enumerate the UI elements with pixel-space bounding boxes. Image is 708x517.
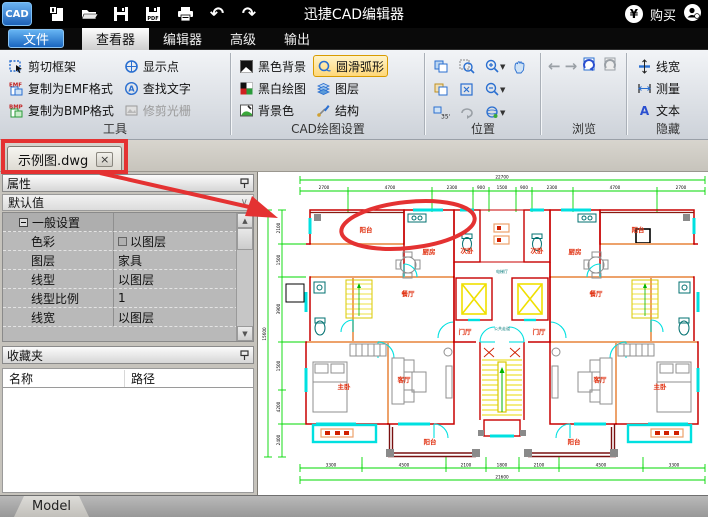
- svg-text:1500: 1500: [276, 254, 281, 265]
- favorites-columns: 名称 路径: [2, 368, 254, 388]
- menu-bar: 文件 查看器 编辑器 高级 输出: [0, 28, 708, 50]
- svg-text:A: A: [640, 104, 650, 118]
- group-cad-settings: 黑色背景 黑白绘图 背景色 圆滑弧形: [232, 50, 424, 139]
- currency-icon: ¥: [625, 5, 643, 23]
- smooth-arc-button[interactable]: 圆滑弧形: [313, 55, 388, 77]
- trim-raster-button: 修剪光栅: [121, 99, 194, 121]
- room-label: 门厅: [459, 327, 473, 336]
- tab-output[interactable]: 输出: [270, 28, 324, 50]
- property-group-row[interactable]: 一般设置: [3, 213, 253, 232]
- window-title: 迅捷CAD编辑器: [304, 4, 404, 24]
- redo-icon[interactable]: ↷: [238, 4, 260, 24]
- bw-drawing-button[interactable]: 黑白绘图: [236, 77, 309, 99]
- black-background-icon: [239, 59, 254, 74]
- zoom-out-button[interactable]: ▼: [482, 78, 508, 101]
- properties-header: 属性: [2, 174, 254, 192]
- copy-view-button[interactable]: [430, 55, 456, 78]
- black-background-button[interactable]: 黑色背景: [236, 55, 309, 77]
- svg-text:4700: 4700: [385, 185, 396, 190]
- document-tab-label: 示例图.dwg: [18, 150, 88, 169]
- svg-text:2100: 2100: [276, 222, 281, 233]
- group-browse: ← → 浏览: [542, 50, 626, 139]
- svg-text:4500: 4500: [596, 463, 607, 468]
- layers-icon: [316, 81, 331, 96]
- model-tab[interactable]: Model: [14, 496, 89, 517]
- app-logo-icon: CAD: [2, 2, 32, 26]
- column-path[interactable]: 路径: [125, 370, 155, 387]
- ribbon: 剪切框架 EMF 复制为EMF格式 BMP 复制为BMP格式 显示点: [0, 50, 708, 140]
- scrollbar[interactable]: ▲ ▼: [236, 213, 253, 341]
- open-file-icon[interactable]: [78, 4, 100, 24]
- svg-text:2400: 2400: [276, 434, 281, 445]
- find-text-button[interactable]: A 查找文字: [121, 77, 194, 99]
- floor-plan: 22700 2700 4700 2300 900 1500 900 2300 4…: [258, 172, 708, 495]
- collapse-icon[interactable]: [19, 218, 28, 227]
- copy-bmp-button[interactable]: BMP 复制为BMP格式: [6, 99, 117, 121]
- reload-all-button: [602, 56, 619, 77]
- svg-text:2100: 2100: [534, 463, 545, 468]
- column-name[interactable]: 名称: [3, 370, 125, 387]
- core-text: 电梯厅: [496, 268, 508, 274]
- account-icon[interactable]: [683, 3, 702, 26]
- measure-icon: [637, 81, 652, 96]
- save-icon[interactable]: [110, 4, 132, 24]
- quick-toolbar: PDF ↶ ↷: [46, 4, 260, 24]
- svg-text:2300: 2300: [547, 185, 558, 190]
- room-label: 阳台: [568, 437, 582, 446]
- new-file-icon[interactable]: [46, 4, 68, 24]
- core: [454, 210, 550, 436]
- back-view-button: ←: [548, 57, 561, 75]
- show-points-button[interactable]: 显示点: [121, 55, 194, 77]
- document-tab-bar: 示例图.dwg ×: [0, 140, 708, 172]
- group-position: ▼ ▼ 35° ▼ 位置: [426, 50, 540, 139]
- zoom-extents-button[interactable]: [456, 78, 482, 101]
- preset-selector[interactable]: 默认值 ∨: [2, 194, 254, 211]
- pan-button[interactable]: [508, 55, 534, 78]
- property-row-linetype[interactable]: 线型 以图层: [3, 270, 253, 289]
- titlebar-right: ¥ 购买: [625, 0, 702, 28]
- color-swatch: [118, 237, 127, 246]
- show-points-icon: [124, 59, 139, 74]
- pin-icon[interactable]: [240, 178, 249, 189]
- copy-emf-button[interactable]: EMF 复制为EMF格式: [6, 77, 117, 99]
- tab-viewer[interactable]: 查看器: [82, 28, 149, 50]
- svg-text:900: 900: [520, 185, 528, 190]
- close-tab-icon[interactable]: ×: [96, 152, 113, 167]
- svg-text:900: 900: [477, 185, 485, 190]
- room-label: 主卧: [654, 382, 668, 391]
- pdf-badge: PDF: [147, 16, 158, 22]
- svg-text:3300: 3300: [669, 463, 680, 468]
- core-text: 公共走道: [494, 325, 510, 331]
- room-label: 主卧: [338, 382, 352, 391]
- drawing-canvas[interactable]: 22700 2700 4700 2300 900 1500 900 2300 4…: [258, 172, 708, 495]
- hide-measure-button[interactable]: 测量: [634, 77, 708, 99]
- svg-text:4500: 4500: [399, 463, 410, 468]
- background-color-button[interactable]: 背景色: [236, 99, 309, 121]
- layers-button[interactable]: 图层: [313, 77, 388, 99]
- print-icon[interactable]: [174, 4, 196, 24]
- property-grid: 一般设置 色彩 以图层 图层 家具 线型 以图层 线型比例 1: [2, 212, 254, 342]
- group-tools: 剪切框架 EMF 复制为EMF格式 BMP 复制为BMP格式 显示点: [0, 50, 230, 139]
- scroll-thumb[interactable]: [237, 228, 253, 250]
- svg-text:1500: 1500: [497, 185, 508, 190]
- scroll-down-icon[interactable]: ▼: [237, 326, 253, 341]
- clip-frame-button[interactable]: 剪切框架: [6, 55, 117, 77]
- property-row-layer[interactable]: 图层 家具: [3, 251, 253, 270]
- tab-editor[interactable]: 编辑器: [149, 28, 216, 50]
- svg-text:3300: 3300: [326, 463, 337, 468]
- zoom-in-button[interactable]: ▼: [482, 55, 508, 78]
- paste-view-button[interactable]: [430, 78, 456, 101]
- room-label: 餐厅: [589, 289, 604, 298]
- favorites-list: [2, 388, 254, 493]
- svg-text:1800: 1800: [497, 463, 508, 468]
- group-label-hide: 隐藏: [628, 120, 708, 137]
- document-tab[interactable]: 示例图.dwg ×: [7, 146, 122, 172]
- background-color-icon: [239, 103, 254, 118]
- structure-icon: [316, 103, 331, 118]
- svg-text:3900: 3900: [276, 303, 281, 314]
- scroll-up-icon[interactable]: ▲: [237, 213, 253, 228]
- room-label: 客厅: [397, 375, 412, 384]
- forward-view-button: →: [565, 57, 578, 75]
- room-label: 厨房: [569, 247, 583, 256]
- save-pdf-icon[interactable]: PDF: [142, 4, 164, 24]
- room-label: 次卧: [531, 246, 545, 255]
- find-text-icon: A: [124, 81, 139, 96]
- undo-icon[interactable]: ↶: [206, 4, 228, 24]
- group-hide: 线宽 测量 A 文本 隐藏: [628, 50, 708, 139]
- svg-text:15600: 15600: [262, 327, 267, 341]
- copy-emf-icon: EMF: [9, 81, 24, 96]
- structure-button[interactable]: 结构: [313, 99, 388, 121]
- svg-text:22700: 22700: [495, 175, 509, 180]
- svg-text:2700: 2700: [676, 185, 687, 190]
- bw-drawing-icon: [239, 81, 254, 96]
- hide-text-button[interactable]: A 文本: [634, 99, 708, 121]
- menu-file-button[interactable]: 文件: [8, 29, 64, 48]
- room-label: 阳台: [632, 225, 646, 234]
- buy-button[interactable]: 购买: [650, 5, 676, 24]
- status-bar: Model: [0, 495, 708, 517]
- left-panel: 属性 默认值 ∨ 一般设置 色彩 以图层 图层 家具: [0, 172, 258, 495]
- property-row-lineweight[interactable]: 线宽 以图层: [3, 308, 253, 327]
- svg-text:2100: 2100: [461, 463, 472, 468]
- dimension-lines: [264, 176, 705, 484]
- text-icon: A: [637, 103, 652, 118]
- title-bar: CAD PDF ↶ ↷ 迅捷CAD编辑器 ¥ 购买: [0, 0, 708, 28]
- hide-linewidth-button[interactable]: 线宽: [634, 55, 708, 77]
- svg-text:4200: 4200: [276, 401, 281, 412]
- linewidth-icon: [637, 59, 652, 74]
- room-labels: 阳台 厨房 次卧 餐厅 主卧 客厅 阳台 门厅 阳台 厨房 次卧 餐厅 主卧 客…: [338, 225, 668, 446]
- room-label: 次卧: [461, 246, 475, 255]
- svg-text:A: A: [128, 84, 135, 93]
- svg-text:21600: 21600: [495, 475, 509, 480]
- zoom-window-button[interactable]: [456, 55, 482, 78]
- svg-text:4700: 4700: [610, 185, 621, 190]
- room-label: 餐厅: [401, 289, 416, 298]
- zoom-in-dropdown[interactable]: ▼: [500, 63, 505, 71]
- property-row-ltscale[interactable]: 线型比例 1: [3, 289, 253, 308]
- group-label-tools: 工具: [0, 120, 230, 137]
- core-texts: 电梯厅 公共走道: [494, 268, 510, 331]
- group-label-cad: CAD绘图设置: [232, 120, 424, 137]
- room-label: 厨房: [423, 247, 437, 256]
- trim-raster-icon: [124, 103, 139, 118]
- tab-advanced[interactable]: 高级: [216, 28, 270, 50]
- smooth-arc-icon: [317, 59, 332, 74]
- svg-text:2700: 2700: [319, 185, 330, 190]
- reload-file-button[interactable]: [581, 56, 598, 77]
- room-label: 客厅: [593, 375, 608, 384]
- favorites-header: 收藏夹: [2, 346, 254, 364]
- copy-bmp-icon: BMP: [9, 103, 24, 118]
- orbit-dropdown[interactable]: ▼: [500, 109, 505, 117]
- clip-frame-icon: [9, 59, 24, 74]
- group-label-position: 位置: [426, 120, 540, 137]
- pin-icon[interactable]: [240, 350, 249, 361]
- zoom-out-dropdown[interactable]: ▼: [500, 86, 505, 94]
- axis-marker-square: [286, 284, 304, 302]
- group-label-browse: 浏览: [542, 120, 626, 137]
- room-label: 门厅: [533, 327, 547, 336]
- room-label: 阳台: [424, 437, 438, 446]
- svg-text:2300: 2300: [447, 185, 458, 190]
- app-window: CAD PDF ↶ ↷ 迅捷CAD编辑器 ¥ 购买: [0, 0, 708, 517]
- chevron-down-icon: ∨: [241, 197, 248, 208]
- svg-text:1500: 1500: [276, 360, 281, 371]
- room-label: 阳台: [360, 225, 374, 234]
- property-row-color[interactable]: 色彩 以图层: [3, 232, 253, 251]
